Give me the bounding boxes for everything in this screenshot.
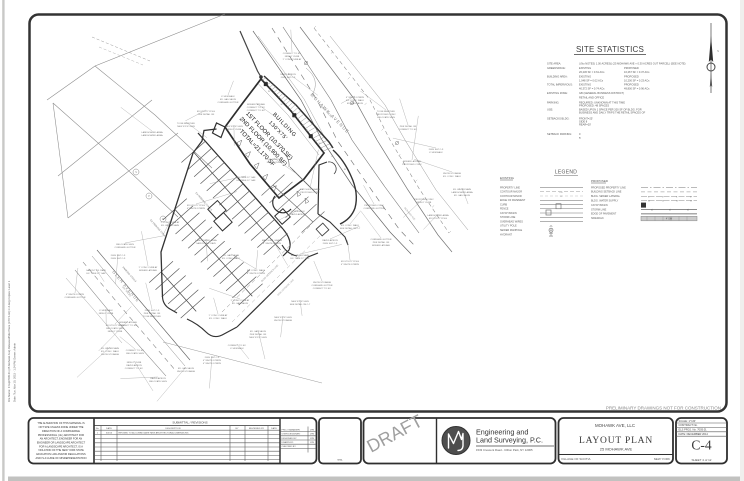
svg-text:TO BE REMOVED: TO BE REMOVED xyxy=(177,123,196,125)
svg-text:| (No NOTES) 1.00 ACRES(| (25: | (No NOTES) 1.00 ACRES(| (25 MOHAWK AVE… xyxy=(579,62,686,66)
svg-text:Land Surveying, P.C.: Land Surveying, P.C. xyxy=(476,436,543,445)
svg-text:EXISTING: EXISTING xyxy=(579,75,591,79)
svg-text:w: w xyxy=(306,129,308,132)
svg-text:EX. CONC. WALK: EX. CONC. WALK xyxy=(443,175,461,178)
svg-text:PROPOSED CONC: PROPOSED CONC xyxy=(402,164,422,166)
svg-text:SCALE: 1"=20': SCALE: 1"=20' xyxy=(679,419,697,423)
svg-text:PAVED APRON: PAVED APRON xyxy=(126,364,142,367)
svg-text:w: w xyxy=(648,200,650,203)
svg-text:BUILDING AREA:: BUILDING AREA: xyxy=(547,75,568,79)
svg-text:CONTOUR MINOR: CONTOUR MINOR xyxy=(500,195,522,198)
svg-text:PAVED APRON: PAVED APRON xyxy=(322,239,338,242)
svg-text:NEW 6" CURB: NEW 6" CURB xyxy=(99,313,114,315)
svg-text:NEW 6" CURB: NEW 6" CURB xyxy=(108,331,123,333)
svg-text:RELOCATE SIGN: RELOCATE SIGN xyxy=(149,380,167,383)
svg-text:49,800 SF = 0.96 ACs: 49,800 SF = 0.96 ACs xyxy=(624,87,650,91)
svg-text:st: st xyxy=(687,209,689,212)
svg-text:16,267 SF = 0.37 ACs: 16,267 SF = 0.37 ACs xyxy=(624,70,650,74)
svg-text:GB (GENERAL BUSINESS DISTRICT): GB (GENERAL BUSINESS DISTRICT) xyxy=(579,91,624,95)
svg-text:PROPOSED CONC: PROPOSED CONC xyxy=(364,205,384,207)
svg-text:DWG SHT C-9: DWG SHT C-9 xyxy=(205,357,220,359)
svg-text:LANDSCAPED AREA: LANDSCAPED AREA xyxy=(141,131,163,134)
svg-text:CURB: CURB xyxy=(500,203,507,206)
svg-text:SNOW STORAGE: SNOW STORAGE xyxy=(443,172,462,175)
svg-text:1533 Crescent Road - Clifton P: 1533 Crescent Road - Clifton Park, NY 12… xyxy=(476,448,533,452)
svg-text:PROPOSED CONC: PROPOSED CONC xyxy=(414,199,434,201)
svg-text:SEAL: SEAL xyxy=(337,459,343,462)
svg-text:LAYOUT PLAN: LAYOUT PLAN xyxy=(579,436,653,446)
svg-text:NOT SPE UNLESS DONE UNDER THE: NOT SPE UNLESS DONE UNDER THE xyxy=(39,426,84,429)
svg-text:LANDSCAPED AREA: LANDSCAPED AREA xyxy=(141,134,163,137)
svg-text:LANDSCAPED AREA: LANDSCAPED AREA xyxy=(451,191,473,194)
svg-text:EX. GAS VALVE: EX. GAS VALVE xyxy=(220,98,237,101)
svg-text:NEW YORK: NEW YORK xyxy=(654,457,670,461)
svg-text:EX. GAS VALVE: EX. GAS VALVE xyxy=(454,194,471,197)
svg-text:w: w xyxy=(676,200,678,203)
svg-text:THE ALTERATION OF THIS MATERIA: THE ALTERATION OF THIS MATERIAL IS xyxy=(37,422,85,425)
svg-text:40,372 SF = 0.74 ACs: 40,372 SF = 0.74 ACs xyxy=(579,87,605,91)
svg-text:JPB: JPB xyxy=(310,442,315,444)
svg-text:BUILDING SETBACK LINE: BUILDING SETBACK LINE xyxy=(591,191,622,194)
svg-text:SITE AREA:: SITE AREA: xyxy=(547,62,561,66)
svg-text:JPB: JPB xyxy=(310,429,315,431)
svg-text:CONTRACT No.: CONTRACT No. xyxy=(679,423,698,427)
svg-text:SEWER LATERAL: SEWER LATERAL xyxy=(139,269,158,272)
svg-text:-O-: -O- xyxy=(549,224,553,228)
svg-text:PROPOSED: PROPOSED xyxy=(591,179,609,183)
svg-text:EX UTILITY POLE: EX UTILITY POLE xyxy=(187,205,206,207)
svg-text:UTILITY POLE: UTILITY POLE xyxy=(500,225,517,228)
svg-text:CATCH BASIN: CATCH BASIN xyxy=(591,204,608,207)
svg-text:EX. GAS VALVE: EX. GAS VALVE xyxy=(178,367,195,370)
svg-text:CONNECT TO EX.: CONNECT TO EX. xyxy=(126,350,145,352)
svg-text:EX. TREE 12" OAK: EX. TREE 12" OAK xyxy=(87,272,107,275)
svg-text:NEW 6" CURB: NEW 6" CURB xyxy=(127,362,142,364)
svg-text:OVER DESIGNER:: OVER DESIGNER: xyxy=(282,434,301,436)
svg-text:w: w xyxy=(293,116,295,119)
svg-text:1,048 SF = 0.02 ACs: 1,048 SF = 0.02 ACs xyxy=(579,79,604,83)
svg-text:EX. WATER MAIN: EX. WATER MAIN xyxy=(161,224,179,227)
svg-text:SNOW STORAGE: SNOW STORAGE xyxy=(177,370,196,373)
svg-text:EX. CONC. WALK: EX. CONC. WALK xyxy=(101,350,119,353)
svg-text:PROFESSIONAL (I.E.) ARCHITECT: PROFESSIONAL (I.E.) ARCHITECT FOR xyxy=(38,434,84,437)
svg-text:w: w xyxy=(690,200,692,203)
svg-text:SEWER LATERAL: SEWER LATERAL xyxy=(403,160,422,163)
svg-text:SEWER LATERAL: SEWER LATERAL xyxy=(372,244,391,247)
svg-text:CURB AND GUTTER: CURB AND GUTTER xyxy=(312,284,333,287)
svg-text:NEW STOP SIGN: NEW STOP SIGN xyxy=(249,337,267,339)
svg-text:DESCRIPTION: DESCRIPTION xyxy=(166,428,181,430)
svg-text:CURB AND GUTTER: CURB AND GUTTER xyxy=(115,246,136,249)
svg-text:EX. WATER MAIN: EX. WATER MAIN xyxy=(291,254,309,257)
svg-text:PER DETAIL ON: PER DETAIL ON xyxy=(400,125,417,128)
svg-text:ELS PROJ. No. 7005.01: ELS PROJ. No. 7005.01 xyxy=(679,428,708,432)
svg-text:PROPOSED: PROPOSED xyxy=(624,83,639,87)
svg-text:Date: Tue, Mar 10, 2015 - 1:24: Date: Tue, Mar 10, 2015 - 1:24 PM Owner:… xyxy=(13,342,17,402)
svg-text:4" WHITE STRIPE: 4" WHITE STRIPE xyxy=(187,208,206,210)
svg-text:4' SW: 4' SW xyxy=(666,217,673,220)
svg-text:st: st xyxy=(651,209,653,212)
svg-text:NEW 6" CURB: NEW 6" CURB xyxy=(227,129,242,131)
svg-text:DESIGNED BY:: DESIGNED BY: xyxy=(282,438,298,440)
svg-text:JPB: JPB xyxy=(310,438,315,440)
svg-text:PER DETAIL ON: PER DETAIL ON xyxy=(250,333,267,336)
svg-text:FOR A LANDSCAPE ARCHITECT, IS: FOR A LANDSCAPE ARCHITECT, IS A xyxy=(39,445,83,448)
svg-text:USE:: USE: xyxy=(547,108,553,112)
svg-text:SETBACK PARKING:: SETBACK PARKING: xyxy=(547,132,572,136)
svg-text:w: w xyxy=(319,142,321,145)
svg-text:DATE: DECEMBER 2014: DATE: DECEMBER 2014 xyxy=(679,432,709,436)
svg-text:SNOW STORAGE: SNOW STORAGE xyxy=(274,319,293,322)
svg-text:SIDEWALK: SIDEWALK xyxy=(591,217,604,220)
svg-text:ENGINEER OR LANDSCAPE ARCHITEC: ENGINEER OR LANDSCAPE ARCHITECT xyxy=(37,441,86,444)
svg-text:w: w xyxy=(662,200,664,203)
svg-text:NEW STOP SIGN: NEW STOP SIGN xyxy=(225,126,243,128)
svg-text:4" WHITE STRIPE: 4" WHITE STRIPE xyxy=(346,97,365,99)
svg-text:No.: No. xyxy=(96,428,100,430)
svg-text:DRAWN BY:: DRAWN BY: xyxy=(282,441,295,444)
svg-text:CONNECT TO EX.: CONNECT TO EX. xyxy=(399,129,418,131)
svg-text:RELOCATE SIGN: RELOCATE SIGN xyxy=(126,352,144,355)
svg-text:6/4/15: 6/4/15 xyxy=(106,432,113,434)
svg-text:PROPOSED PROPERTY LINE: PROPOSED PROPERTY LINE xyxy=(591,186,626,189)
svg-text:PRELIMINARY DRAWINGS NOT FOR C: PRELIMINARY DRAWINGS NOT FOR CONSTRUCTIO… xyxy=(606,405,721,410)
svg-text:BLDG. SEWER LATERAL: BLDG. SEWER LATERAL xyxy=(591,195,621,198)
svg-text:File Name: F:\wp\7005.01 (25 M: File Name: F:\wp\7005.01 (25 Mohawk Ave)… xyxy=(7,280,11,402)
svg-text:EX. TREE 12" OAK: EX. TREE 12" OAK xyxy=(291,257,311,260)
svg-text:25 MOHAWK AVE: 25 MOHAWK AVE xyxy=(600,447,633,452)
svg-text:PER DETAIL ON: PER DETAIL ON xyxy=(373,241,390,244)
svg-text:4" WHITE STRIPE: 4" WHITE STRIPE xyxy=(66,294,85,296)
svg-text:OVERHEAD WIRES: OVERHEAD WIRES xyxy=(500,220,523,223)
svg-text:STORM LINE: STORM LINE xyxy=(591,208,607,211)
svg-text:CONNECT TO EX.: CONNECT TO EX. xyxy=(313,288,332,290)
svg-text:NEW 6" CURB: NEW 6" CURB xyxy=(267,162,282,164)
svg-text:EX. GAS VALVE: EX. GAS VALVE xyxy=(232,302,249,305)
svg-text:SHEET 4 of 12: SHEET 4 of 12 xyxy=(692,458,712,462)
svg-text:JPB: JPB xyxy=(310,434,315,436)
svg-text:1" CONC CURB AT: 1" CONC CURB AT xyxy=(231,299,251,302)
svg-text:CURB AND GUTTER: CURB AND GUTTER xyxy=(364,207,385,210)
svg-text:PAVED APRON: PAVED APRON xyxy=(150,377,166,380)
svg-text:DWG SHT C-9: DWG SHT C-9 xyxy=(429,149,444,151)
svg-text:1" CONC CURB AT: 1" CONC CURB AT xyxy=(209,314,229,317)
svg-text:HYDRANT: HYDRANT xyxy=(500,233,513,236)
svg-text:SNOW STORAGE: SNOW STORAGE xyxy=(101,353,120,356)
svg-text:EX. CONC. WALK: EX. CONC. WALK xyxy=(222,257,240,260)
svg-text:w: w xyxy=(268,90,270,93)
svg-text:1" CONC CURB AT: 1" CONC CURB AT xyxy=(139,266,159,269)
svg-text:SETBACKS BLDG:: SETBACKS BLDG: xyxy=(547,117,570,121)
svg-text:VILLAGE OF SCOTIA: VILLAGE OF SCOTIA xyxy=(561,457,591,461)
svg-text:st: st xyxy=(669,209,671,212)
svg-text:PROPOSED: PROPOSED xyxy=(624,66,639,70)
svg-text:EDGE OF PAVEMENT: EDGE OF PAVEMENT xyxy=(500,199,526,202)
svg-text:PROPOSED: PROPOSED xyxy=(624,75,639,79)
svg-text:REAR=20': REAR=20' xyxy=(579,123,592,127)
svg-text:EX UTILITY POLE: EX UTILITY POLE xyxy=(341,261,360,263)
svg-text:PROPERTY LINE: PROPERTY LINE xyxy=(500,186,520,189)
svg-text:EX. CONC. WALK: EX. CONC. WALK xyxy=(247,269,265,272)
svg-text:10,200 SF = 0.23 ACs: 10,200 SF = 0.23 ACs xyxy=(624,79,650,83)
svg-text:CURB AND GUTTER: CURB AND GUTTER xyxy=(218,101,239,104)
svg-text:DIRECTION OF A COMPARABLE: DIRECTION OF A COMPARABLE xyxy=(42,430,80,433)
svg-text:SITE STATISTICS: SITE STATISTICS xyxy=(576,45,644,54)
svg-text:LANDSCAPED AREA: LANDSCAPED AREA xyxy=(427,214,449,217)
svg-text:CHECKED BY:: CHECKED BY: xyxy=(282,446,297,448)
svg-text:VIOLATION OF THE NEW YORK STAT: VIOLATION OF THE NEW YORK STATE xyxy=(38,449,84,452)
svg-text:BLDG. WATER SUPPLY: BLDG. WATER SUPPLY xyxy=(591,200,619,203)
svg-text:GREENSPACE:: GREENSPACE: xyxy=(547,66,566,70)
svg-text:4" WHITE STRIPE: 4" WHITE STRIPE xyxy=(341,264,360,266)
svg-text:REVIEWED BY: REVIEWED BY xyxy=(249,428,265,430)
svg-text:TO BE REMOVED: TO BE REMOVED xyxy=(265,159,284,161)
svg-text:BUSINESS AND DAILY TRIPS THE R: BUSINESS AND DAILY TRIPS THE RETAIL SPAC… xyxy=(579,111,646,115)
svg-text:EDGE OF PAVEMENT: EDGE OF PAVEMENT xyxy=(591,213,617,216)
svg-text:4" WHITE STRIPE: 4" WHITE STRIPE xyxy=(247,273,266,275)
svg-text:DWG SHT C-9: DWG SHT C-9 xyxy=(323,243,338,245)
svg-text:RELOCATE SIGN: RELOCATE SIGN xyxy=(116,243,134,246)
svg-text:w: w xyxy=(331,155,333,158)
svg-text:CONNECT TO EX.: CONNECT TO EX. xyxy=(228,345,247,347)
svg-text:FENCE: FENCE xyxy=(500,208,509,211)
svg-text:N: N xyxy=(717,49,719,53)
svg-text:DWG SHT C-9: DWG SHT C-9 xyxy=(111,255,126,257)
svg-text:PAVED APRON: PAVED APRON xyxy=(290,213,306,216)
svg-text:EX. TREE 12" OAK: EX. TREE 12" OAK xyxy=(237,179,257,182)
svg-text:w: w xyxy=(344,168,346,171)
svg-text:MATCH EX. GRADE: MATCH EX. GRADE xyxy=(300,188,321,191)
svg-text:6' SIDEWALK: 6' SIDEWALK xyxy=(221,95,235,98)
svg-text:REVISED TO ACCOMMODATE NEW ARC: REVISED TO ACCOMMODATE NEW ARCHITECTURAL… xyxy=(119,431,189,434)
svg-text:CURB AND GUTTER: CURB AND GUTTER xyxy=(371,238,392,241)
svg-text:TO BE REMOVED: TO BE REMOVED xyxy=(377,111,396,113)
svg-text:CURB AND GUTTER: CURB AND GUTTER xyxy=(65,296,86,299)
svg-text:NEW 6" CURB: NEW 6" CURB xyxy=(285,56,300,58)
svg-text:CONNECT TO EX.: CONNECT TO EX. xyxy=(247,110,266,112)
svg-text:EXISTING ZONE:: EXISTING ZONE: xyxy=(547,91,568,95)
svg-text:RELOCATE SIGN: RELOCATE SIGN xyxy=(106,327,124,330)
svg-text:CONNECT TO EX.: CONNECT TO EX. xyxy=(119,325,138,327)
svg-text:PER DETAIL ON: PER DETAIL ON xyxy=(198,113,215,116)
svg-text:EXISTING: EXISTING xyxy=(579,66,591,70)
svg-text:4" WHITE STRIPE: 4" WHITE STRIPE xyxy=(203,363,222,365)
svg-text:EXISTING: EXISTING xyxy=(579,83,591,87)
svg-text:EX. CONC. WALK: EX. CONC. WALK xyxy=(209,317,227,320)
svg-text:6' SIDEWALK: 6' SIDEWALK xyxy=(99,309,113,312)
svg-text:4" WHITE STRIPE: 4" WHITE STRIPE xyxy=(203,360,222,362)
svg-text:EX. GAS VALVE: EX. GAS VALVE xyxy=(347,102,364,105)
svg-text:PAVED APRON: PAVED APRON xyxy=(280,73,296,76)
svg-text:RELOCATE SIGN: RELOCATE SIGN xyxy=(377,116,395,119)
svg-text:SEE DETAIL ON C-7: SEE DETAIL ON C-7 xyxy=(340,227,361,230)
svg-text:C-4: C-4 xyxy=(691,438,712,453)
svg-text:AND IS A GUIDE OF MISREPRESENT: AND IS A GUIDE OF MISREPRESENTATION xyxy=(36,457,87,460)
svg-text:CONTOUR MAJOR: CONTOUR MAJOR xyxy=(500,191,522,194)
svg-text:PROPOSED: 48 SPACES: PROPOSED: 48 SPACES xyxy=(579,104,609,108)
svg-text:SNOW STORAGE: SNOW STORAGE xyxy=(313,281,332,284)
svg-text:LEGEND: LEGEND xyxy=(555,170,577,176)
svg-text:EX UTILITY POLE: EX UTILITY POLE xyxy=(429,218,448,220)
svg-text:PROJ. MANAGER:: PROJ. MANAGER: xyxy=(282,428,301,431)
svg-text:EX. GAS VALVE: EX. GAS VALVE xyxy=(223,254,240,257)
svg-text:SUBMITTAL / REVISIONS: SUBMITTAL / REVISIONS xyxy=(172,420,207,424)
svg-text:26,236 SF = 0.61 ACs: 26,236 SF = 0.61 ACs xyxy=(579,70,605,74)
svg-text:DWG SHT C-9: DWG SHT C-9 xyxy=(145,310,160,312)
svg-text:AN ARCHITECT, ENGINEER FOR AN: AN ARCHITECT, ENGINEER FOR AN xyxy=(40,438,83,441)
svg-text:NEW STOP SIGN: NEW STOP SIGN xyxy=(274,317,292,319)
svg-text:PER DETAIL ON: PER DETAIL ON xyxy=(144,312,161,315)
svg-text:DATE: DATE xyxy=(106,427,112,430)
svg-text:TO BE REMOVED: TO BE REMOVED xyxy=(143,316,162,318)
svg-text:MOHAWK AVE, LLC: MOHAWK AVE, LLC xyxy=(595,423,635,428)
svg-text:PROPOSED CONC: PROPOSED CONC xyxy=(376,114,396,116)
svg-text:PARKING:: PARKING: xyxy=(547,101,559,105)
svg-text:SEWER LATERAL: SEWER LATERAL xyxy=(119,321,138,324)
svg-text:DATE: DATE xyxy=(271,427,277,430)
svg-text:SEWER MANHOLE: SEWER MANHOLE xyxy=(500,229,523,232)
svg-text:TOTAL IMPERVIOUS:: TOTAL IMPERVIOUS: xyxy=(547,83,573,87)
svg-text:CONNECT TO EX.: CONNECT TO EX. xyxy=(125,368,144,370)
svg-text:CONNECT TO EX.: CONNECT TO EX. xyxy=(283,53,302,55)
svg-text:DWG SHT C-9: DWG SHT C-9 xyxy=(111,258,126,260)
svg-text:4" WHITE STRIPE: 4" WHITE STRIPE xyxy=(263,243,282,245)
svg-text:EXISTING: EXISTING xyxy=(500,176,515,180)
svg-text:w: w xyxy=(281,103,283,106)
svg-text:RETAIL AND OFFICE: RETAIL AND OFFICE xyxy=(579,96,604,100)
svg-text:1" CONC CURB AT: 1" CONC CURB AT xyxy=(161,221,181,224)
svg-text:PROPOSED CONC: PROPOSED CONC xyxy=(300,192,320,194)
svg-text:CATCH BASIN: CATCH BASIN xyxy=(500,212,517,215)
svg-text:6' SIDEWALK: 6' SIDEWALK xyxy=(230,347,244,350)
svg-text:EX. CONC. WALK: EX. CONC. WALK xyxy=(341,224,359,227)
svg-text:1" CONC CURB AT: 1" CONC CURB AT xyxy=(283,58,303,61)
svg-text:STORM LINE: STORM LINE xyxy=(500,216,516,219)
svg-text:EDUCATION LAW AND/OR REGULATIO: EDUCATION LAW AND/OR REGULATIONS xyxy=(36,453,86,456)
svg-text:EX. WATER MAIN: EX. WATER MAIN xyxy=(101,347,119,350)
svg-text:EX UTILITY POLE: EX UTILITY POLE xyxy=(197,111,216,113)
svg-text:6' SIDEWALK: 6' SIDEWALK xyxy=(429,151,443,154)
